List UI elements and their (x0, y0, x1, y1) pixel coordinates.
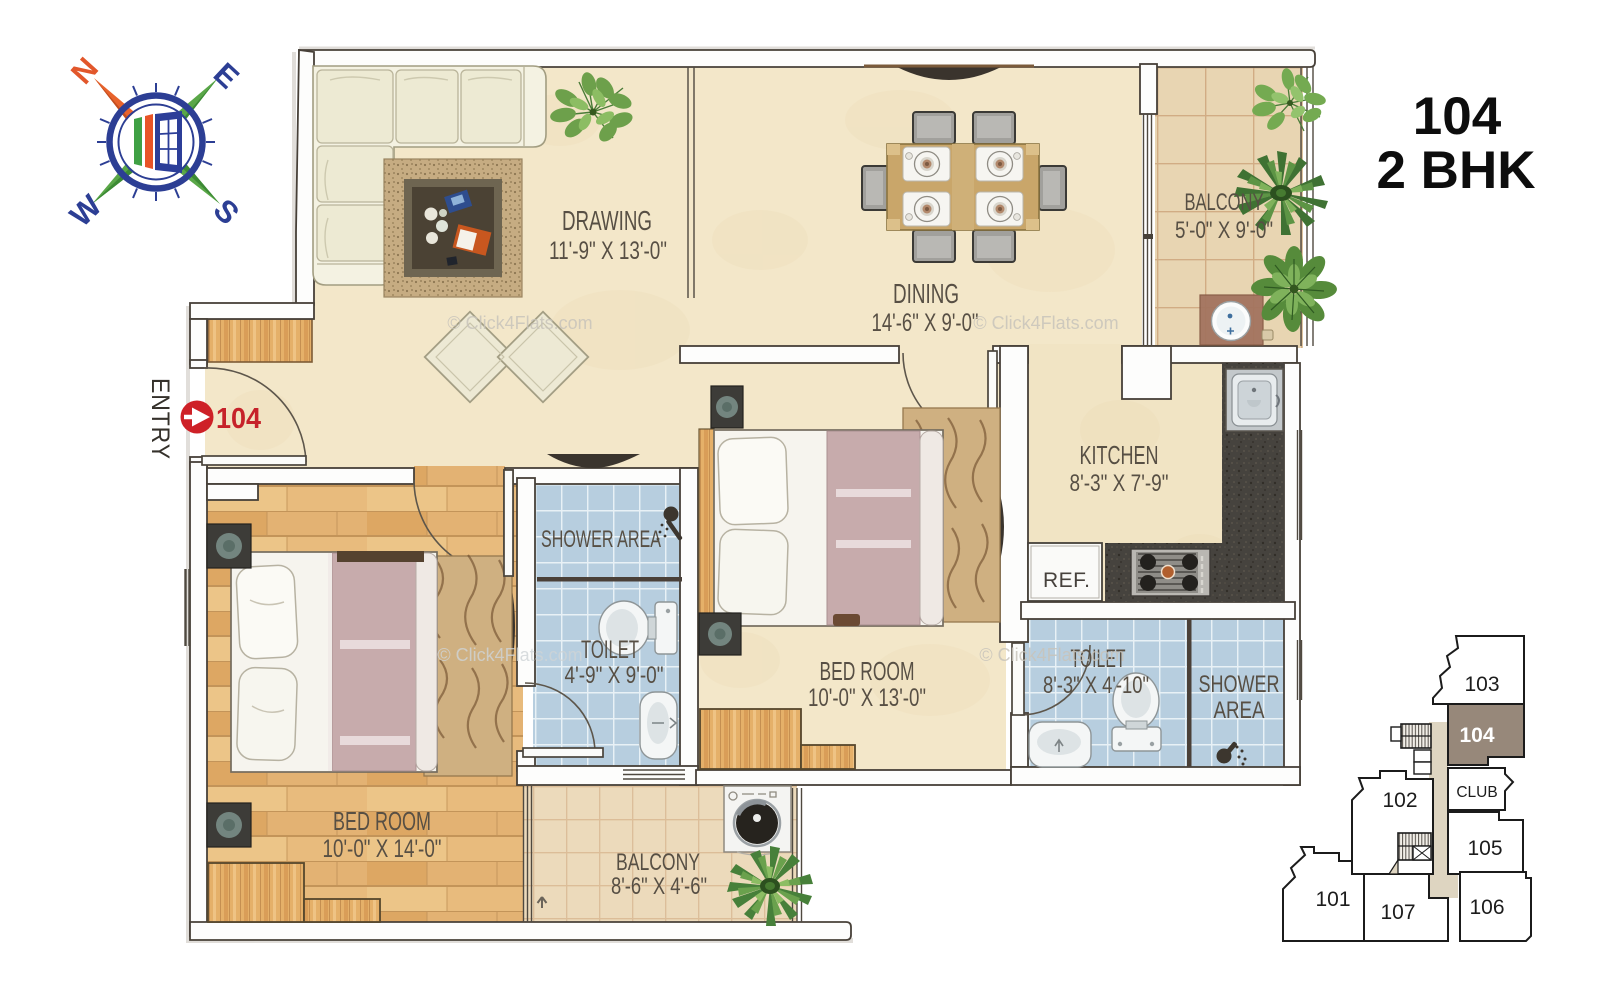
svg-text:© Click4Flats.com: © Click4Flats.com (973, 313, 1118, 333)
svg-text:DRAWING: DRAWING (562, 205, 652, 236)
svg-text:8'-3" X 7'-9": 8'-3" X 7'-9" (1070, 470, 1169, 497)
svg-text:BED ROOM: BED ROOM (333, 806, 431, 836)
svg-text:105: 105 (1467, 837, 1502, 860)
svg-text:CLUB: CLUB (1456, 784, 1497, 801)
svg-text:106: 106 (1469, 896, 1504, 919)
svg-text:4'-9" X 9'-0": 4'-9" X 9'-0" (565, 662, 664, 689)
svg-text:AREA: AREA (1214, 697, 1265, 724)
svg-text:© Click4Flats.com: © Click4Flats.com (437, 645, 582, 665)
svg-text:BALCONY: BALCONY (1185, 189, 1264, 216)
svg-text:8'-6" X 4'-6": 8'-6" X 4'-6" (611, 873, 707, 900)
svg-text:5'-0" X 9'-0": 5'-0" X 9'-0" (1175, 217, 1273, 244)
svg-text:© Click4Flats.com: © Click4Flats.com (979, 645, 1124, 665)
svg-text:DINING: DINING (893, 278, 959, 309)
svg-text:104: 104 (216, 403, 261, 435)
svg-text:BED ROOM: BED ROOM (820, 656, 915, 686)
svg-text:ENTRY: ENTRY (146, 378, 174, 460)
svg-text:BALCONY: BALCONY (616, 849, 700, 876)
svg-text:REF.: REF. (1043, 569, 1091, 592)
svg-text:8'-3" X 4'-10": 8'-3" X 4'-10" (1043, 672, 1149, 699)
svg-text:14'-6" X 9'-0": 14'-6" X 9'-0" (872, 309, 979, 337)
svg-text:10'-0" X 14'-0": 10'-0" X 14'-0" (323, 835, 442, 863)
svg-text:101: 101 (1315, 888, 1350, 911)
svg-text:SHOWER: SHOWER (1199, 671, 1280, 698)
svg-text:104: 104 (1413, 87, 1502, 146)
svg-text:KITCHEN: KITCHEN (1080, 440, 1159, 470)
svg-text:104: 104 (1459, 724, 1494, 747)
svg-text:TOILET: TOILET (581, 636, 639, 664)
svg-text:10'-0" X 13'-0": 10'-0" X 13'-0" (808, 684, 926, 712)
svg-text:107: 107 (1380, 901, 1415, 924)
svg-text:2 BHK: 2 BHK (1376, 141, 1535, 200)
svg-text:SHOWER AREA: SHOWER AREA (541, 526, 661, 553)
svg-text:11'-9" X 13'-0": 11'-9" X 13'-0" (549, 237, 667, 265)
svg-text:102: 102 (1382, 789, 1417, 812)
svg-text:© Click4Flats.com: © Click4Flats.com (447, 313, 592, 333)
svg-text:103: 103 (1464, 673, 1499, 696)
